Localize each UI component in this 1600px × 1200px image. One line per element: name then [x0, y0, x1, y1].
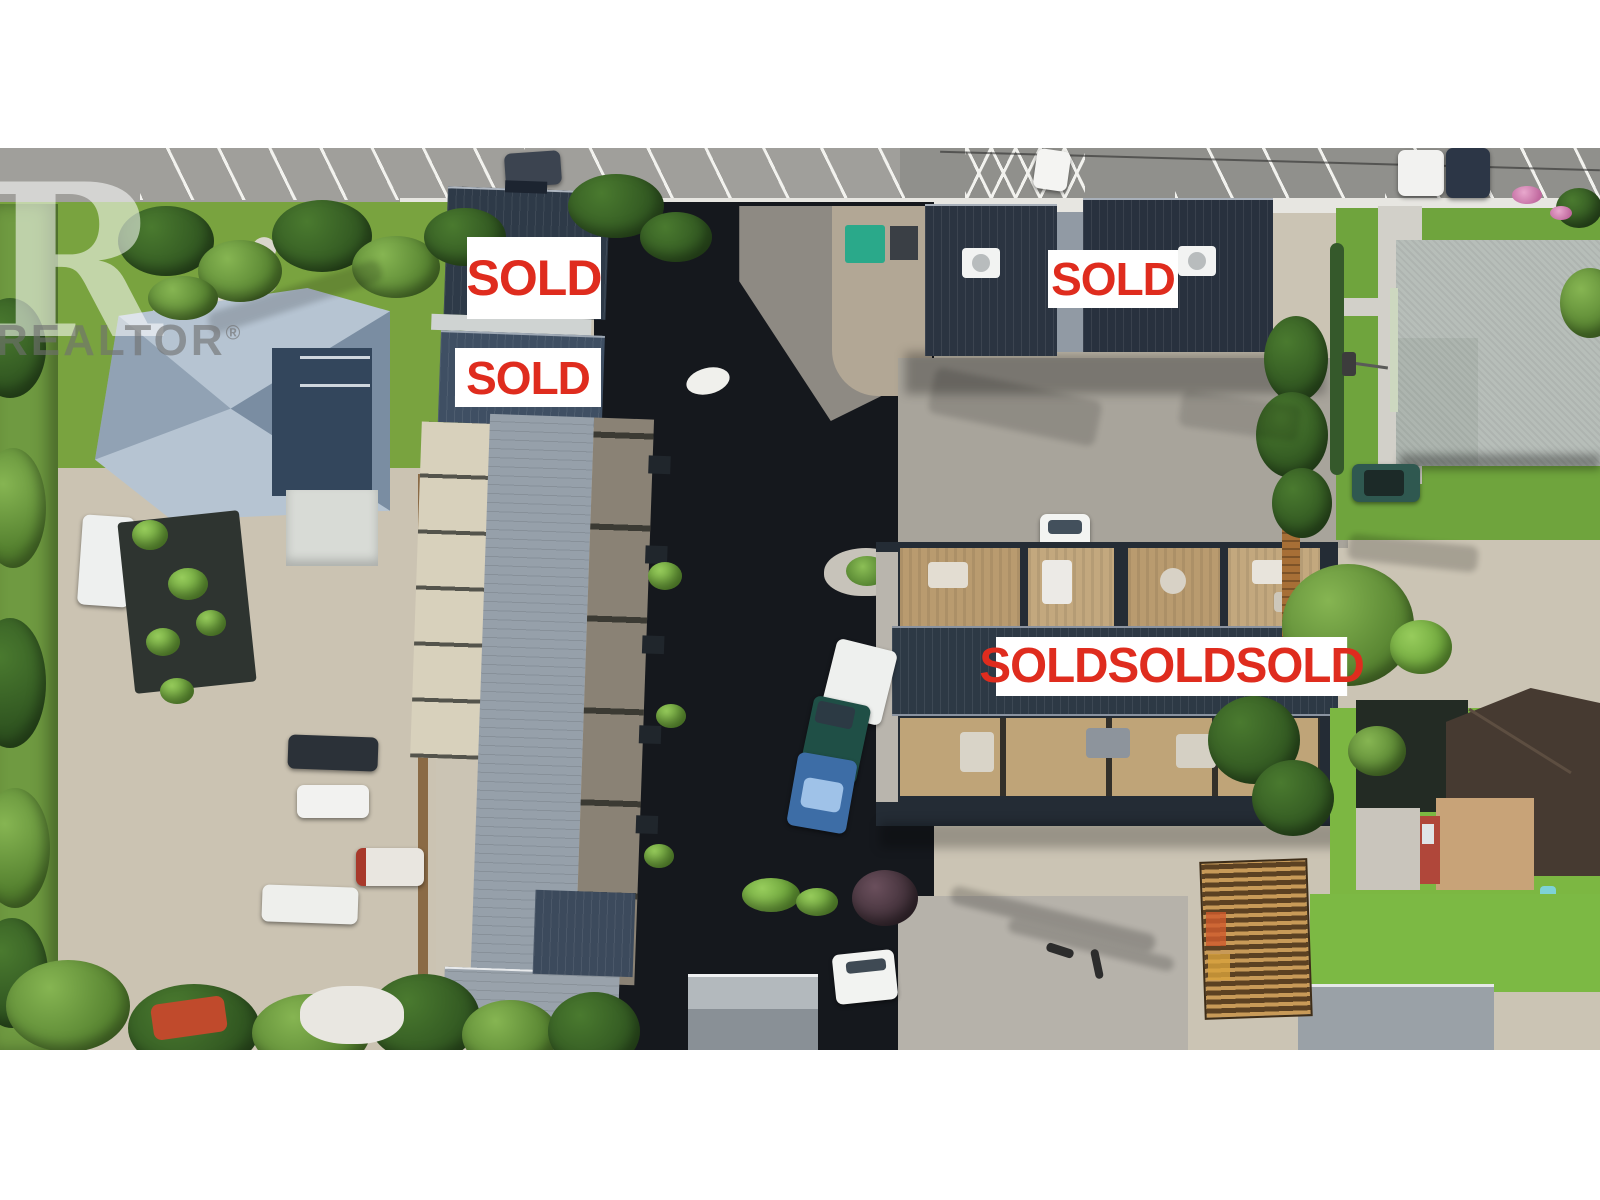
white-tarp: [300, 986, 404, 1044]
carport: [286, 490, 378, 566]
pergola-item-yellow: [1208, 954, 1230, 980]
shrub: [160, 678, 194, 704]
building-north-west-wing: [925, 204, 1057, 356]
pickup-white: [261, 884, 358, 924]
tree: [640, 212, 712, 262]
sold-sign-text: SOLD: [467, 253, 602, 303]
car-windshield: [1048, 520, 1082, 534]
walk-spur: [1340, 298, 1380, 316]
sold-banner-south-building: SOLDSOLDSOLD: [996, 637, 1347, 696]
house-west-railing: [300, 356, 370, 359]
driveway-southeast: [1356, 808, 1420, 890]
sold-sign-north-building: SOLD: [1048, 250, 1178, 308]
tree: [6, 960, 130, 1050]
shrub: [1390, 620, 1452, 674]
house-northeast-wing: [1396, 338, 1478, 466]
parking-stripes: [1175, 148, 1350, 198]
townhouse-stoop: [639, 725, 662, 744]
tree: [148, 276, 218, 320]
shrub: [796, 888, 838, 916]
shrub: [648, 562, 682, 590]
rooftop-ac-fan: [1188, 252, 1206, 270]
sold-sign-text: SOLD: [1051, 256, 1175, 302]
deck-furniture: [1086, 728, 1130, 758]
tree: [1272, 468, 1332, 538]
sold-banner-text: SOLDSOLDSOLD: [979, 642, 1363, 691]
tree: [852, 870, 918, 926]
house-northeast-wall: [1390, 288, 1398, 412]
parked-car: [1032, 148, 1071, 192]
tree: [1252, 760, 1334, 836]
patio-table: [1160, 568, 1186, 594]
patio-mat: [890, 226, 918, 260]
flower-bush: [1512, 186, 1542, 204]
sold-sign-townhouse-upper: SOLD: [467, 237, 601, 319]
tree: [1264, 316, 1328, 402]
aerial-photo: SOLD SOLD SOLD SOLDSOLDSOLD R REALTOR®: [0, 148, 1600, 1050]
car-teal-windows: [1364, 470, 1404, 496]
car-white: [297, 785, 369, 818]
pergola-item-orange: [1206, 912, 1226, 946]
house-northeast-eave-shadow: [1400, 454, 1600, 470]
flower-bush: [1550, 206, 1572, 220]
shrub: [656, 704, 686, 728]
house-southeast-window: [1422, 824, 1434, 844]
shrub: [146, 628, 180, 656]
townhouse-chimney: [505, 180, 547, 193]
shrub: [132, 520, 168, 550]
townhouse-stoop: [648, 455, 671, 474]
shrub: [644, 844, 674, 868]
sold-sign-text: SOLD: [466, 355, 590, 401]
patio-sofa: [928, 562, 968, 588]
shrub: [168, 568, 208, 600]
suv-white: [832, 949, 899, 1005]
rooftop-ac-fan: [972, 254, 990, 272]
sold-sign-townhouse-lower: SOLD: [455, 348, 601, 407]
listing-photo-page: SOLD SOLD SOLD SOLDSOLDSOLD R REALTOR®: [0, 0, 1600, 1200]
townhouse-stoop: [642, 635, 665, 654]
parked-car: [1446, 148, 1490, 198]
deck-furniture: [960, 732, 994, 772]
lawn-southeast: [1310, 894, 1600, 992]
picnic-shelter: [845, 225, 885, 263]
house-west-railing: [300, 384, 370, 387]
garage-southeast-roof: [1298, 984, 1494, 1050]
townhouse-south-unit: [533, 890, 636, 977]
pickup-dark: [287, 734, 378, 771]
parked-van: [1398, 150, 1444, 196]
patio-sofa: [1042, 560, 1072, 604]
townhouse-stoop: [636, 815, 659, 834]
house-southeast-tan-roof: [1436, 798, 1534, 890]
shrub: [742, 878, 800, 912]
basketball-backboard: [1342, 352, 1356, 376]
house-west-court: [272, 348, 372, 496]
tree: [1348, 726, 1406, 776]
building-bottom-roof: [688, 974, 818, 1050]
shrub: [196, 610, 226, 636]
